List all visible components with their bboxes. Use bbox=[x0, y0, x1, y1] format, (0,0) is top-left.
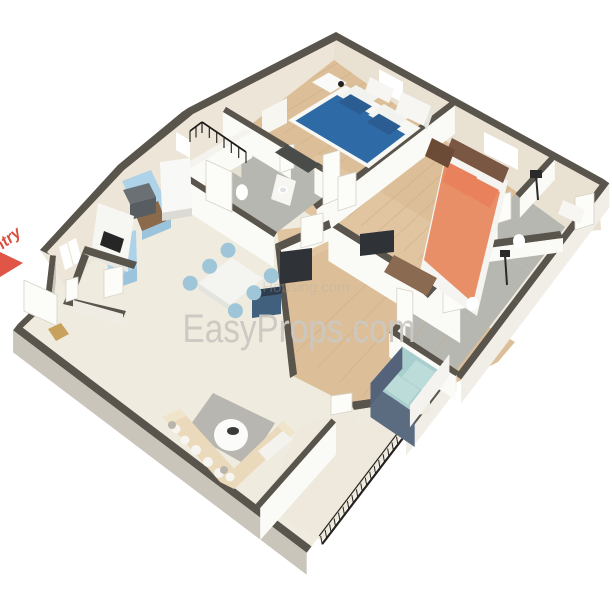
svg-text:EasyProps.com: EasyProps.com bbox=[183, 307, 416, 351]
svg-text:Housing.com: Housing.com bbox=[262, 279, 350, 296]
